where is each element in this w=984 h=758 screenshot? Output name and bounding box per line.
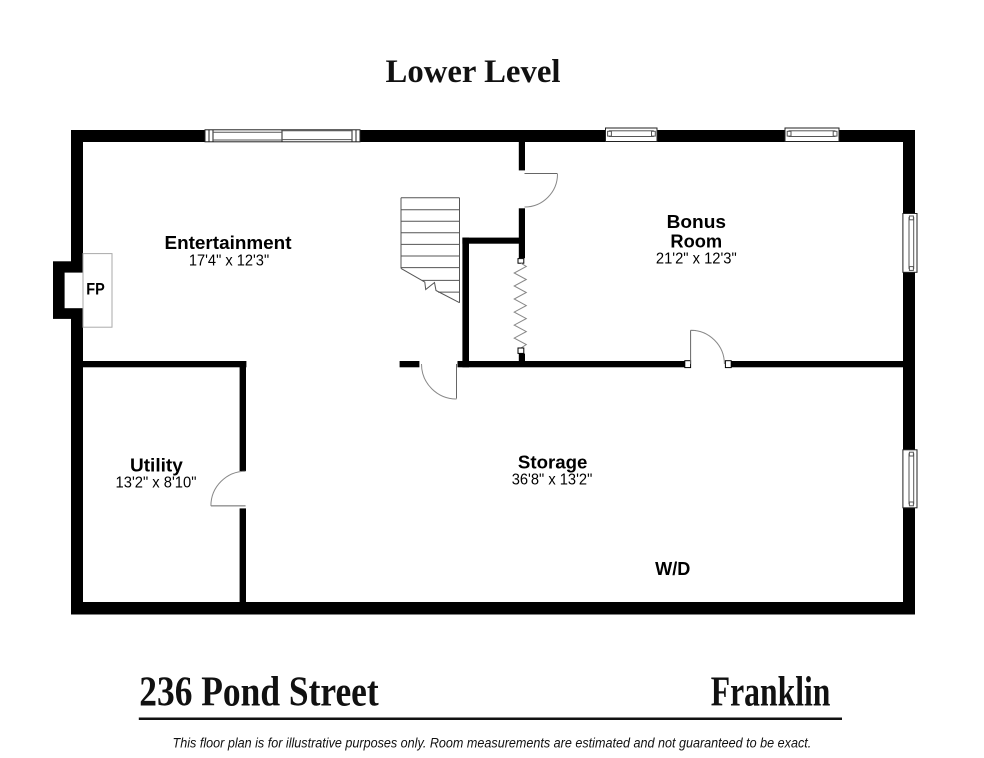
svg-text:W/D: W/D: [655, 559, 690, 579]
svg-text:Franklin: Franklin: [711, 670, 831, 716]
svg-text:236 Pond Street: 236 Pond Street: [139, 670, 378, 716]
svg-text:Utility: Utility: [130, 456, 183, 476]
svg-text:36'8" x 13'2": 36'8" x 13'2": [512, 472, 593, 489]
svg-text:Lower Level: Lower Level: [386, 54, 561, 90]
svg-text:Storage: Storage: [518, 453, 588, 473]
svg-text:FP: FP: [86, 280, 105, 299]
svg-text:Entertainment: Entertainment: [165, 233, 292, 253]
svg-text:21'2" x 12'3": 21'2" x 12'3": [656, 251, 737, 268]
svg-text:Room: Room: [670, 232, 722, 252]
svg-text:This floor plan is for illustr: This floor plan is for illustrative purp…: [173, 736, 812, 751]
svg-text:Bonus: Bonus: [667, 212, 726, 232]
svg-text:17'4" x 12'3": 17'4" x 12'3": [189, 253, 269, 270]
svg-text:13'2" x 8'10": 13'2" x 8'10": [116, 475, 197, 492]
